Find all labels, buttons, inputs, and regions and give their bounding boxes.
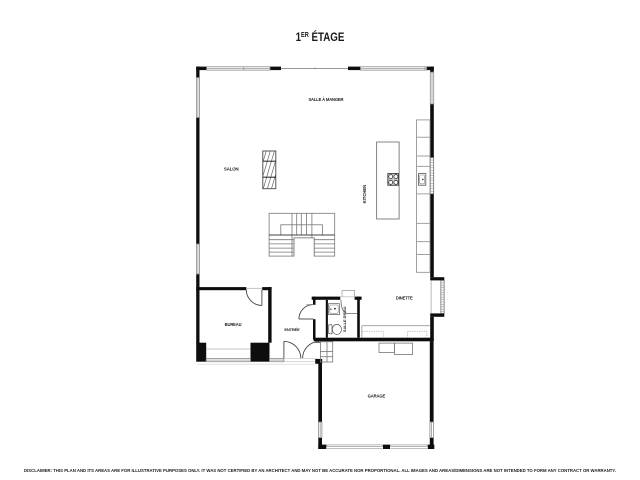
svg-text:SALLE À MANGER: SALLE À MANGER (308, 97, 343, 102)
svg-text:DISCLAIMER: THIS PLAN AND ITS: DISCLAIMER: THIS PLAN AND ITS AREAS ARE … (24, 468, 616, 473)
svg-text:BUREAU: BUREAU (225, 322, 242, 327)
svg-text:SALON: SALON (224, 167, 239, 172)
svg-text:GARAGE: GARAGE (368, 394, 386, 399)
svg-text:DINETTE: DINETTE (396, 295, 413, 300)
svg-text:SALLE D'EAU: SALLE D'EAU (342, 306, 347, 332)
svg-text:ENTRÉE: ENTRÉE (284, 327, 300, 332)
svg-text:KITCHEN: KITCHEN (362, 185, 367, 204)
